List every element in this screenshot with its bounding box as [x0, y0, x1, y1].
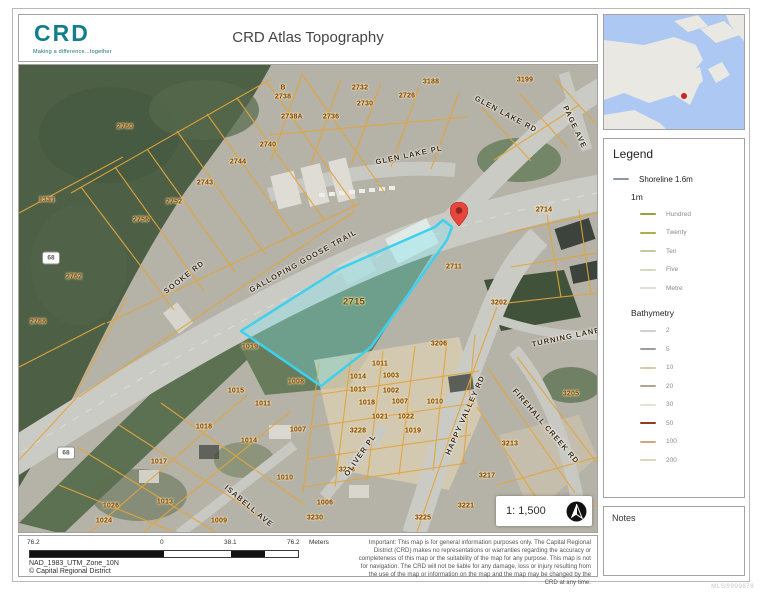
parcel-label: 2730 [357, 101, 373, 108]
legend-line-swatch [640, 213, 656, 215]
notes-panel: Notes [603, 506, 745, 576]
legend-1m-heading: 1m [631, 188, 738, 205]
overview-map[interactable] [603, 14, 745, 130]
parcel-label: 3221 [458, 503, 474, 510]
parcel-label: 1019 [242, 344, 258, 351]
legend-line-swatch [640, 459, 656, 461]
legend-item: Twenty [640, 224, 738, 243]
parcel-label: 1003 [383, 373, 399, 380]
parcel-label: 2768 [30, 319, 46, 326]
parcel-label: 2714 [536, 207, 552, 214]
mls-watermark: MLS®999878 [711, 583, 754, 590]
legend-item-label: 30 [666, 401, 673, 408]
parcel-label: 2752 [166, 199, 182, 206]
logo-tagline: Making a difference...together [33, 49, 128, 55]
scalebar: 76.2 0 38.1 76.2 Meters [29, 539, 329, 561]
scalebar-mid-label: 38.1 [224, 539, 237, 546]
legend-item: Metre [640, 279, 738, 298]
parcel-label: 2744 [230, 159, 246, 166]
legend-item: 50 [640, 414, 738, 433]
legend-item-label: 200 [666, 457, 677, 464]
legend-item: Five [640, 261, 738, 280]
copyright-label: © Capital Regional District [29, 568, 111, 575]
map-scale-box: 1: 1,500 [496, 496, 592, 526]
legend-item-label: 50 [666, 420, 673, 427]
legend-line-swatch [640, 385, 656, 387]
legend-line-swatch [640, 348, 656, 350]
legend-item-label: Twenty [666, 229, 687, 236]
parcel-label: 1002 [383, 388, 399, 395]
parcel-label: 2738A [281, 114, 303, 121]
legend-item-label: Ten [666, 248, 676, 255]
legend-item: 5 [640, 340, 738, 359]
projection-label: NAD_1983_UTM_Zone_10N [29, 560, 119, 567]
legend-panel: Legend Shoreline 1.6m 1m HundredTwentyTe… [603, 138, 745, 498]
legend-item-label: 5 [666, 346, 670, 353]
parcel-label: 1011 [255, 401, 271, 408]
parcel-label: 1018 [196, 424, 212, 431]
legend-item: 200 [640, 451, 738, 470]
parcel-label: 1006 [317, 500, 333, 507]
legend-item-label: Metre [666, 285, 683, 292]
legend-1m-items: HundredTwentyTenFiveMetre [631, 205, 738, 298]
overview-location-marker [681, 93, 687, 99]
notes-title: Notes [612, 513, 736, 523]
legend-line-swatch [640, 441, 656, 443]
parcel-label: 3202 [491, 300, 507, 307]
map-area[interactable]: 1: 1,500 2760133127622768275627522743274… [18, 64, 598, 533]
parcel-label: 1013 [350, 387, 366, 394]
legend-shoreline-row: Shoreline 1.6m [613, 170, 738, 188]
parcel-label: 1008 [288, 379, 304, 386]
parcel-label: 2738 [275, 94, 291, 101]
scalebar-left-label: 76.2 [27, 539, 40, 546]
legend-item: 30 [640, 396, 738, 415]
scalebar-right-label: 76.2 [287, 539, 300, 546]
legend-item-label: 10 [666, 364, 673, 371]
legend-item: 2 [640, 322, 738, 341]
parcel-label: 1010 [277, 475, 293, 482]
legend-line-swatch [640, 422, 656, 424]
parcel-label: 1011 [372, 361, 388, 368]
parcel-label: 1019 [405, 428, 421, 435]
legend-item: 100 [640, 433, 738, 452]
parcel-label: 2740 [260, 142, 276, 149]
legend-item: 10 [640, 359, 738, 378]
legend-item-label: 20 [666, 383, 673, 390]
parcel-label: 1018 [359, 400, 375, 407]
parcel-label: 2743 [197, 180, 213, 187]
parcel-label: 3230 [307, 515, 323, 522]
parcel-label: 2732 [352, 85, 368, 92]
legend-bathymetry-items: 2510203050100200 [631, 322, 738, 470]
parcel-label: 1013 [157, 499, 173, 506]
header-bar: CRD Making a difference...together CRD A… [18, 14, 598, 62]
legend-line-swatch [640, 367, 656, 369]
map-scale-text: 1: 1,500 [506, 505, 546, 517]
overview-map-image [604, 15, 744, 129]
legend-item-label: Five [666, 266, 678, 273]
parcel-label: 1010 [427, 399, 443, 406]
parcel-label: 1014 [350, 374, 366, 381]
parcel-label: 3205 [563, 391, 579, 398]
legend-item: Hundred [640, 205, 738, 224]
highway-shield: 68 [57, 447, 75, 460]
legend-line-swatch [640, 250, 656, 252]
parcel-label: 1014 [241, 438, 257, 445]
parcel-label: 1015 [228, 388, 244, 395]
parcel-label: 2736 [323, 114, 339, 121]
footer-strip: 76.2 0 38.1 76.2 Meters NAD_1983_UTM_Zon… [18, 535, 598, 577]
north-arrow-icon [566, 501, 587, 522]
parcel-label: 1009 [211, 518, 227, 525]
legend-bathymetry-heading: Bathymetry [631, 305, 738, 322]
legend-title: Legend [613, 147, 738, 161]
parcel-label: 2760 [117, 124, 133, 131]
legend-line-swatch [640, 269, 656, 271]
page-title: CRD Atlas Topography [19, 29, 597, 46]
scalebar-zero-label: 0 [160, 539, 164, 546]
legend-item: Ten [640, 242, 738, 261]
aerial-imagery [19, 65, 597, 533]
parcel-label: 3188 [423, 79, 439, 86]
parcel-label: 1024 [96, 518, 112, 525]
parcel-label: 3213 [502, 441, 518, 448]
highway-shield: 68 [42, 252, 60, 265]
parcel-label: B [280, 85, 285, 92]
legend-line-swatch [640, 232, 656, 234]
parcel-label: 3225 [415, 515, 431, 522]
parcel-label: 2756 [133, 217, 149, 224]
parcel-label: 1021 [372, 414, 388, 421]
scalebar-unit-label: Meters [309, 539, 329, 546]
legend-line-swatch [640, 404, 656, 406]
parcel-label: 1331 [39, 197, 55, 204]
legend-line-swatch [640, 330, 656, 332]
parcel-label: 1026 [103, 503, 119, 510]
parcel-label: 2711 [446, 264, 462, 271]
legend-item-label: Hundred [666, 211, 691, 218]
atlas-page: CRD Making a difference...together CRD A… [0, 0, 760, 600]
legend-item-label: 100 [666, 438, 677, 445]
parcel-label: 2715 [343, 297, 365, 308]
parcel-label: 1007 [290, 427, 306, 434]
parcel-label: 3206 [431, 341, 447, 348]
legend-item: 20 [640, 377, 738, 396]
parcel-label: 2762 [66, 274, 82, 281]
parcel-label: 1017 [151, 459, 167, 466]
scalebar-bar [29, 550, 299, 558]
parcel-label: 2726 [399, 93, 415, 100]
location-pin-icon [450, 202, 468, 231]
shoreline-line-swatch [613, 178, 629, 180]
parcel-label: 3228 [350, 428, 366, 435]
parcel-label: 3217 [479, 473, 495, 480]
parcel-label: 3199 [517, 77, 533, 84]
shoreline-label: Shoreline 1.6m [639, 175, 693, 184]
legend-line-swatch [640, 287, 656, 289]
parcel-label: 1007 [392, 399, 408, 406]
disclaimer-text: Important: This map is for general infor… [357, 539, 591, 587]
parcel-label: 1022 [398, 414, 414, 421]
legend-item-label: 2 [666, 327, 670, 334]
